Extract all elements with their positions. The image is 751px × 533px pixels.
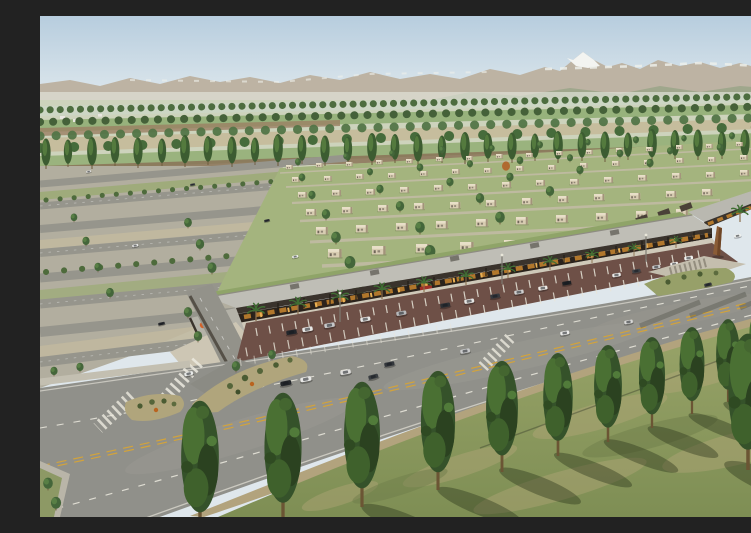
entry-cars — [733, 234, 751, 243]
aerial-development-rendering: Aerial 3D architectural rendering of a m… — [40, 16, 751, 517]
rendering-canvas — [40, 16, 751, 517]
autumn-tree — [502, 161, 510, 170]
